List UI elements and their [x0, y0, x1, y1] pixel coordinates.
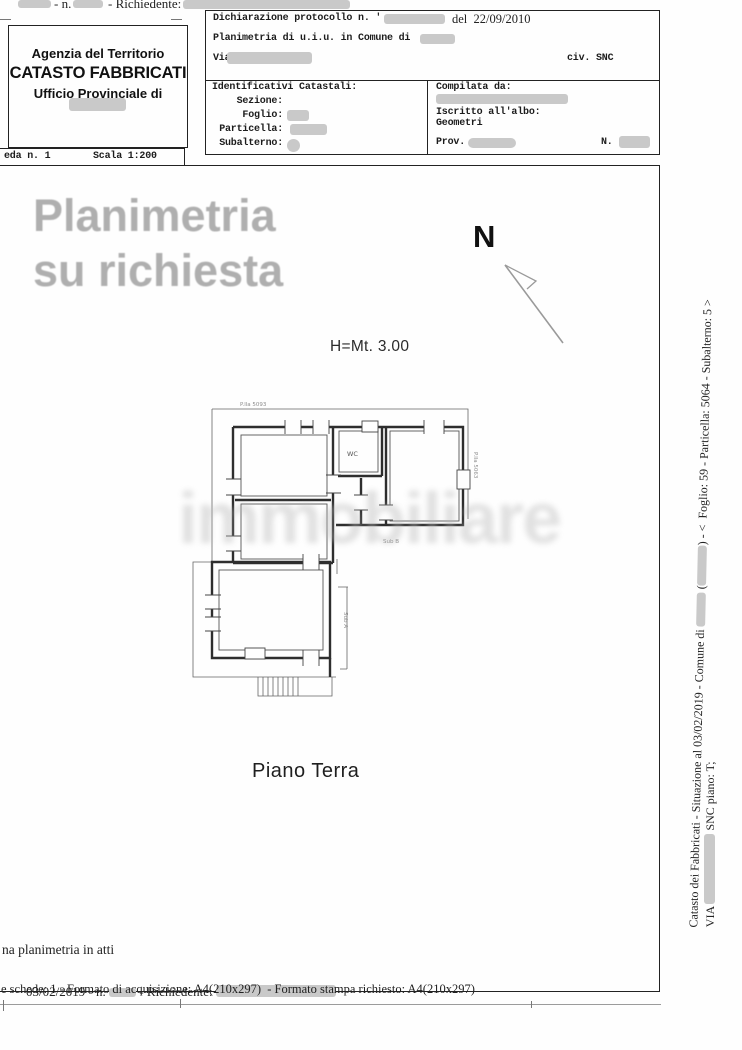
redaction-box — [69, 98, 126, 111]
north-label: N — [473, 219, 495, 255]
top-strip-richiedente-label: - Richiedente: — [108, 0, 181, 12]
redaction-box — [290, 124, 327, 135]
margin-via-text-a: VIA — [703, 904, 717, 928]
ruler-tick — [3, 1000, 4, 1011]
subalterno-label: Subalterno: — [209, 138, 283, 149]
fold-ruler-line — [0, 1004, 661, 1005]
north-arrow-icon — [460, 255, 580, 350]
margin-catasto-text-b: ( — [694, 585, 708, 592]
compilata-label: Compilata da: — [436, 82, 511, 93]
watermark-line1: Planimetria — [33, 188, 283, 243]
redaction-box — [287, 110, 309, 121]
redaction-box — [420, 34, 455, 44]
albo-label: Iscritto all'albo: — [436, 107, 540, 118]
scheda-scala-bar: eda n. 1 Scala 1:200 — [0, 148, 185, 166]
agency-name: Agenzia del Territorio — [9, 46, 187, 61]
redaction-box — [704, 834, 715, 904]
planimetria-watermark: Planimetria su richiesta — [33, 188, 283, 298]
agency-box: Agenzia del Territorio CATASTO FABBRICAT… — [8, 25, 188, 148]
top-strip-n-label: - n. — [54, 0, 71, 12]
redaction-box — [18, 0, 51, 8]
margin-catasto-text-c: ) - < Foglio: 59 - Particella: 5064 - Su… — [695, 299, 715, 545]
protocollo-date: del 22/09/2010 — [452, 12, 530, 27]
sub-a-label: Sub A — [342, 612, 348, 628]
height-label: H=Mt. 3.00 — [330, 338, 409, 356]
watermark-line2: su richiesta — [33, 243, 283, 298]
parcel-right-label: P.lla 5063 — [472, 452, 478, 479]
scala-label: Scala 1:200 — [93, 151, 157, 162]
sezione-label: Sezione: — [209, 96, 283, 107]
redaction-box — [697, 545, 707, 585]
foglio-label: Foglio: — [209, 110, 283, 121]
civ-label: civ. SNC — [567, 53, 613, 64]
redaction-box — [183, 0, 350, 9]
ruler-tick — [180, 999, 181, 1008]
redaction-box — [468, 138, 516, 148]
divider-vertical — [427, 80, 428, 155]
catasto-title: CATASTO FABBRICATI — [9, 64, 187, 83]
redaction-box — [287, 139, 300, 152]
crop-tick — [0, 19, 11, 20]
parcel-top-label: P.lla 5093 — [240, 402, 267, 408]
margin-via-text-b: SNC piano: T; — [703, 761, 717, 833]
margin-via-line: VIA SNC piano: T; — [688, 761, 733, 939]
footer-formato-line: e schede: 1 - Formato di acquisizione: A… — [1, 982, 475, 997]
prov-label: Prov. — [436, 137, 465, 148]
n-label: N. — [601, 137, 613, 148]
redaction-box — [384, 14, 445, 24]
cadastral-document-page: - n. - Richiedente: Agenzia del Territor… — [0, 0, 742, 1050]
floor-label: Piano Terra — [252, 760, 359, 783]
crop-tick — [171, 19, 182, 20]
footer-atti-line: na planimetria in atti — [2, 942, 114, 958]
wc-label: WC — [347, 450, 358, 458]
particella-label: Particella: — [209, 124, 283, 135]
redaction-box — [436, 94, 568, 104]
scheda-number: eda n. 1 — [4, 151, 50, 162]
albo-category: Geometri — [436, 118, 482, 129]
immobiliare-ghost-watermark: immobiliare — [178, 478, 678, 560]
protocollo-label: Dichiarazione protocollo n. ' — [213, 13, 381, 24]
identificativi-title: Identificativi Catastali: — [212, 82, 357, 93]
redaction-box — [227, 52, 312, 64]
redaction-box — [619, 136, 650, 148]
divider-horizontal — [205, 80, 660, 81]
ruler-tick — [531, 1001, 532, 1008]
redaction-box — [73, 0, 103, 8]
planimetria-comune-label: Planimetria di u.i.u. in Comune di — [213, 33, 410, 44]
redaction-box — [696, 592, 706, 626]
